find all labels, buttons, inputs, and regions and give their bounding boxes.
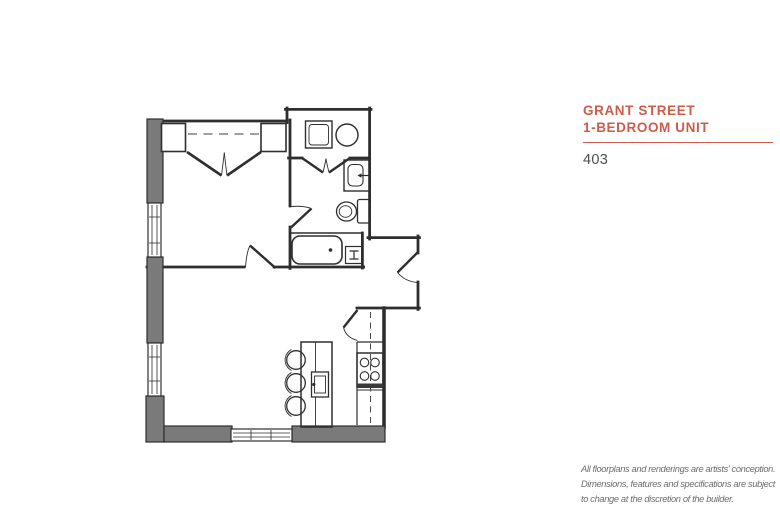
- bar-stool-icon: [285, 396, 305, 417]
- laundry-closet-doors-icon: [302, 158, 350, 173]
- vanity-sink-icon: [344, 160, 370, 191]
- bar-stool-icon: [285, 373, 305, 394]
- toilet-icon: [337, 200, 370, 224]
- bedroom-closet: [162, 124, 287, 176]
- closet-double-doors-icon: [187, 152, 261, 176]
- island-sink-icon: [312, 372, 329, 397]
- disclaimer: All floorplans and renderings are artist…: [581, 462, 776, 508]
- bathroom: [292, 160, 370, 264]
- living-window-icon: [148, 343, 161, 396]
- bedroom-door-icon: [246, 246, 276, 269]
- bedroom-window-icon: [148, 203, 161, 257]
- unit-number: 403: [583, 152, 775, 168]
- floorplan-drawing: [0, 0, 780, 517]
- disclaimer-line: Dimensions, features and specifications …: [581, 477, 776, 492]
- laundry-closet: [302, 121, 358, 173]
- bar-stool-icon: [285, 350, 305, 371]
- exterior-walls: [146, 119, 385, 442]
- windows: [148, 203, 292, 441]
- title-rule: [583, 142, 773, 143]
- floor-register-icon: [346, 247, 363, 264]
- bathtub-icon: [292, 236, 342, 264]
- info-panel: GRANT STREET 1-BEDROOM UNIT 403: [583, 103, 775, 168]
- bottom-window-icon: [231, 429, 292, 441]
- bar-stools: [285, 350, 305, 417]
- entry-door-icon: [398, 253, 418, 283]
- unit-title-line2: 1-BEDROOM UNIT: [583, 120, 775, 137]
- kitchen: [285, 312, 384, 427]
- bathroom-door-icon: [291, 206, 312, 227]
- unit-title-line1: GRANT STREET: [583, 103, 775, 120]
- kitchen-counter: [357, 312, 384, 425]
- pantry-door-icon: [344, 310, 358, 341]
- disclaimer-line: to change at the discretion of the build…: [581, 492, 776, 507]
- disclaimer-line: All floorplans and renderings are artist…: [581, 462, 776, 477]
- washer-icon: [306, 121, 333, 148]
- dryer-icon: [336, 124, 358, 146]
- doors: [246, 206, 418, 340]
